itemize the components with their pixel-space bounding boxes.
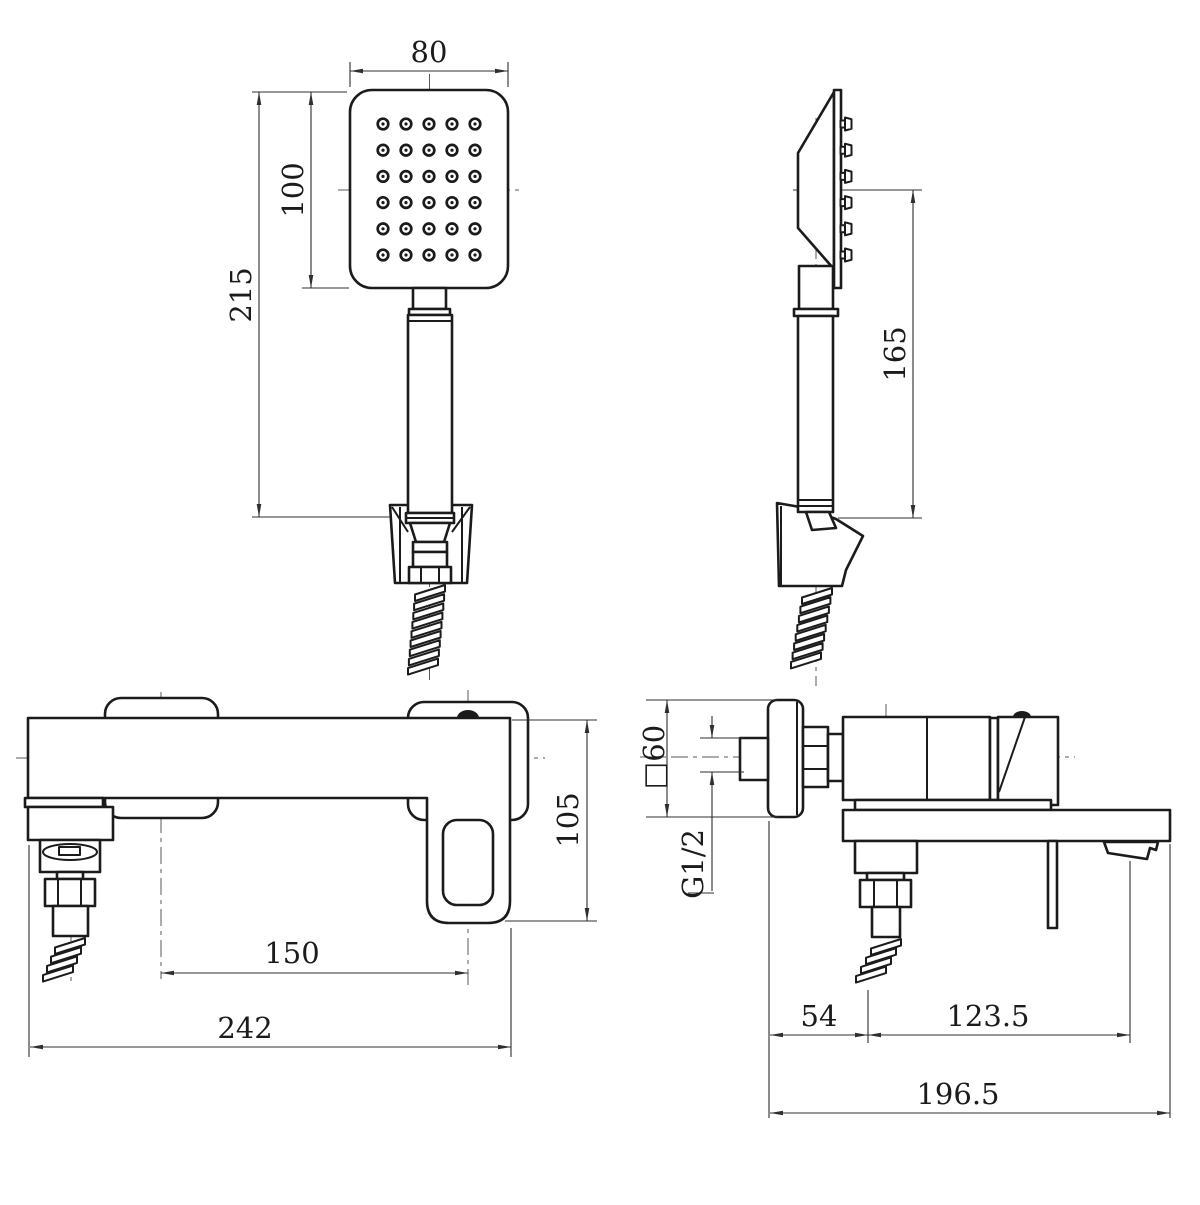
nozzle-dot: [404, 175, 407, 178]
nozzle-cap: [845, 196, 852, 209]
dim-outlet-offset-label: 54: [801, 999, 838, 1033]
aerator-slot: [59, 847, 80, 855]
head-neck: [413, 288, 446, 309]
handle-end-cone: [410, 523, 450, 542]
nozzle-dot: [473, 175, 476, 178]
nozzle-dot: [404, 149, 407, 152]
nozzle-dot: [427, 175, 430, 178]
diverter-rod: [1048, 841, 1057, 928]
nozzle-dot: [404, 253, 407, 256]
spout-plate: [843, 810, 1170, 841]
nozzle-dot: [473, 149, 476, 152]
neck-side: [799, 266, 833, 309]
nozzle-dot: [450, 149, 453, 152]
nozzle-cap: [845, 249, 852, 262]
dim-body-height-label: 105: [551, 792, 585, 847]
nozzle-dot: [404, 227, 407, 230]
outlet-block-side: [855, 841, 917, 873]
hose-sleeve: [413, 552, 447, 567]
nozzle-dot: [381, 201, 384, 204]
nozzle-dot: [404, 122, 407, 125]
nozzle-dot: [381, 149, 384, 152]
dim-body-width-label: 242: [217, 1011, 272, 1045]
nozzle-dot: [450, 122, 453, 125]
nozzle-cap: [845, 222, 852, 235]
valve-body-side: [843, 717, 990, 800]
nozzle-dot: [427, 227, 430, 230]
dim-head-width-label: 80: [411, 35, 448, 69]
outlet-stub-side: [872, 907, 900, 937]
outlet-strip: [25, 798, 103, 807]
dim-handshower-length-label: 215: [224, 267, 258, 322]
nozzle-dot: [450, 175, 453, 178]
nozzle-dot: [450, 227, 453, 230]
outlet-nut: [45, 879, 95, 906]
nozzle-dot: [450, 253, 453, 256]
nozzle-dot: [381, 175, 384, 178]
nozzle-dot: [381, 253, 384, 256]
nozzle-dot: [404, 201, 407, 204]
lever-handle-side: [998, 717, 1058, 805]
shower-handle: [408, 315, 452, 513]
nozzle-dot: [427, 253, 430, 256]
outlet-nut-side: [860, 880, 911, 907]
nozzle-dot: [381, 122, 384, 125]
nozzle-cap: [845, 144, 852, 157]
dim-hang-height-label: 165: [878, 326, 912, 381]
nozzle-cap: [845, 170, 852, 183]
technical-drawing: 80 100 215 165: [0, 0, 1200, 1200]
inlet-connector: [828, 734, 843, 781]
outlet-block: [28, 807, 113, 840]
nozzle-dot: [427, 149, 430, 152]
drawing-sheet: 80 100 215 165: [0, 0, 1200, 1200]
nozzle-dot: [427, 201, 430, 204]
base-strip: [855, 800, 1051, 810]
dim-overall-depth-label: 196.5: [916, 1077, 999, 1111]
nozzle-dot: [427, 122, 430, 125]
nozzle-dot: [473, 122, 476, 125]
hose-cap: [413, 542, 447, 552]
nozzle-dot: [473, 227, 476, 230]
inlet-nut: [803, 727, 828, 787]
dim-mounting-centers-label: 150: [264, 936, 319, 970]
hose-nut: [409, 567, 451, 583]
inlet-stub: [740, 738, 768, 780]
nozzle-dot: [473, 253, 476, 256]
outlet-stub: [53, 906, 88, 936]
nozzle-cap: [845, 118, 852, 131]
nozzle-dot: [381, 227, 384, 230]
handle-end-plug: [806, 512, 836, 530]
nozzle-dot: [450, 201, 453, 204]
dim-spout-offset-label: 123.5: [946, 999, 1029, 1033]
nozzle-dot: [473, 201, 476, 204]
handle-side: [798, 316, 833, 512]
dim-thread-label: G1/2: [676, 829, 710, 899]
dim-head-face-height-label: 100: [276, 162, 310, 217]
lever-window: [443, 820, 493, 905]
dim-flange-size-label: □60: [637, 725, 671, 789]
